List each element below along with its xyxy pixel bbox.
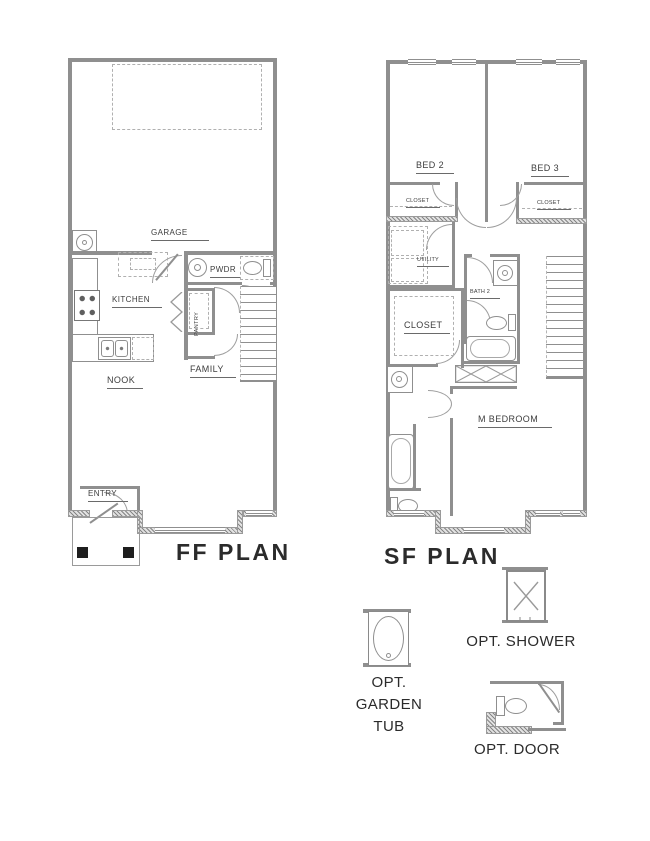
- window: [536, 510, 560, 516]
- wall: [452, 222, 455, 288]
- sink-basin: [101, 340, 114, 357]
- wall: [553, 722, 564, 725]
- wall: [386, 216, 458, 222]
- toilet-tank: [508, 314, 516, 331]
- wall: [270, 282, 277, 285]
- door-arc: [426, 224, 452, 250]
- sink-drain: [194, 264, 201, 271]
- wall: [486, 726, 532, 734]
- room-label-pwdr: PWDR: [210, 266, 240, 278]
- bifold-door-icon: [168, 292, 184, 332]
- opt-garden-tub-label-line2: GARDEN: [352, 696, 426, 713]
- porch-column: [123, 547, 134, 558]
- wall: [68, 510, 90, 517]
- wall: [490, 681, 564, 684]
- stairs: [546, 256, 584, 378]
- wall: [112, 510, 140, 517]
- wall: [450, 418, 453, 516]
- wall: [464, 361, 520, 364]
- wall: [184, 356, 215, 359]
- sf-plan-title: SF PLAN: [384, 543, 500, 570]
- toilet-icon: [505, 698, 527, 714]
- room-label-entry: ENTRY: [88, 490, 128, 502]
- toilet-tank: [496, 696, 505, 716]
- stair-landing: [546, 377, 584, 379]
- microwave-icon: [130, 258, 156, 270]
- room-label-walkin-closet: CLOSET: [404, 321, 450, 334]
- mbath-tub-basin: [391, 438, 411, 484]
- window: [394, 510, 424, 516]
- room-label-family: FAMILY: [190, 365, 236, 378]
- washer-icon: [391, 230, 424, 256]
- opt-garden-tub-label-line1: OPT.: [352, 674, 426, 691]
- window: [556, 59, 580, 65]
- stove-icon: [74, 290, 100, 321]
- door-arc: [214, 334, 238, 356]
- wall: [184, 282, 242, 285]
- wall: [184, 285, 188, 360]
- water-heater-valve: [82, 240, 87, 245]
- wall: [68, 58, 277, 62]
- opt-shower-label: OPT. SHOWER: [466, 633, 576, 650]
- door-arc: [428, 390, 452, 404]
- wall: [450, 386, 453, 394]
- wall: [528, 728, 566, 731]
- room-label-utility: UTILITY: [417, 258, 449, 267]
- opt-shower-icon: [506, 570, 546, 622]
- window: [246, 510, 272, 516]
- wall: [561, 681, 564, 725]
- opt-garden-tub-label-line3: TUB: [352, 718, 426, 735]
- floorplan-sheet: GARAGE KITCHEN PWDR PANTRY FAMILY NOOK E…: [0, 0, 650, 841]
- stairs: [240, 286, 277, 382]
- wall: [184, 251, 277, 255]
- room-label-closet-bed2: CLOSET: [406, 199, 440, 208]
- wall: [390, 288, 464, 291]
- wall: [516, 218, 587, 224]
- room-label-bed2: BED 2: [416, 161, 454, 174]
- sink-drain: [502, 270, 508, 276]
- wall: [490, 254, 520, 257]
- window: [408, 59, 436, 65]
- wall: [388, 488, 421, 491]
- porch: [72, 517, 140, 566]
- tub-drain: [386, 653, 391, 658]
- door-arc: [214, 287, 240, 313]
- room-label-garage: GARAGE: [151, 229, 209, 241]
- wall: [524, 182, 587, 185]
- ff-plan-title: FF PLAN: [176, 539, 291, 566]
- door-arc: [428, 404, 452, 418]
- wall: [184, 288, 215, 291]
- toilet-icon: [243, 261, 262, 275]
- door-arc: [456, 198, 486, 228]
- porch-column: [77, 547, 88, 558]
- room-label-nook: NOOK: [107, 376, 143, 389]
- toilet-icon: [486, 316, 507, 330]
- room-label-bed3: BED 3: [531, 164, 569, 177]
- wall: [461, 288, 464, 368]
- room-label-closet-bed3: CLOSET: [537, 201, 571, 210]
- window: [516, 59, 542, 65]
- door-arc: [487, 198, 517, 228]
- window: [563, 510, 580, 516]
- refrigerator-icon: [132, 337, 154, 360]
- room-label-pantry: PANTRY: [195, 298, 201, 336]
- opt-shower-location-icon: [455, 365, 517, 383]
- bathtub-basin: [470, 339, 510, 358]
- room-label-kitchen: KITCHEN: [112, 296, 162, 308]
- window: [155, 527, 225, 533]
- toilet-tank: [263, 259, 271, 277]
- room-label-bath2: BATH 2: [470, 290, 500, 299]
- room-label-m-bedroom: M BEDROOM: [478, 415, 552, 428]
- garage-door-dashed-line: [112, 64, 262, 130]
- sink-drain: [396, 376, 402, 382]
- door-arc: [467, 257, 493, 283]
- wall: [453, 386, 517, 389]
- window: [464, 527, 504, 533]
- sink-basin: [115, 340, 128, 357]
- stair-landing: [240, 380, 277, 382]
- window: [452, 59, 476, 65]
- opt-door-label: OPT. DOOR: [474, 741, 558, 758]
